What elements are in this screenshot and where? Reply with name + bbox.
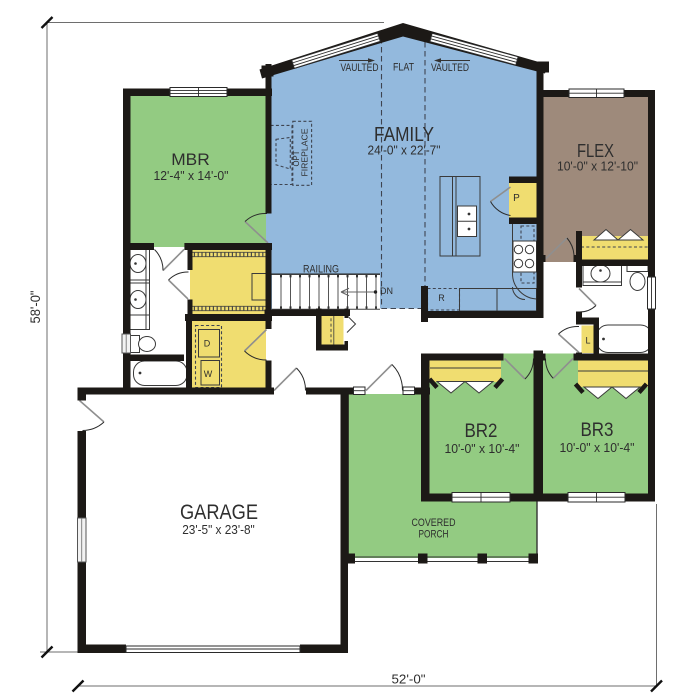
svg-text:58'-0": 58'-0" <box>28 290 43 323</box>
svg-text:FIREPLACE: FIREPLACE <box>300 128 310 176</box>
svg-text:BR3: BR3 <box>581 420 614 441</box>
svg-text:PORCH: PORCH <box>419 529 449 541</box>
svg-text:10'-0" x 12'-10": 10'-0" x 12'-10" <box>557 159 638 174</box>
svg-text:MBR: MBR <box>171 150 210 169</box>
svg-text:52'-0": 52'-0" <box>392 672 426 687</box>
svg-text:R: R <box>438 293 445 303</box>
svg-text:W: W <box>204 369 213 379</box>
svg-text:10'-0" x 10'-4": 10'-0" x 10'-4" <box>560 440 635 455</box>
svg-text:L: L <box>585 336 590 346</box>
svg-text:FLAT: FLAT <box>393 62 414 74</box>
svg-text:DN: DN <box>380 286 393 296</box>
svg-text:10'-0" x 10'-4": 10'-0" x 10'-4" <box>445 441 520 456</box>
svg-text:GARAGE: GARAGE <box>180 501 258 524</box>
svg-text:23'-5" x 23'-8": 23'-5" x 23'-8" <box>182 522 255 537</box>
svg-text:24'-0" x 22'-7": 24'-0" x 22'-7" <box>368 143 441 158</box>
svg-text:12'-4" x 14'-0": 12'-4" x 14'-0" <box>154 168 229 183</box>
svg-text:D: D <box>204 339 211 349</box>
svg-text:RAILING: RAILING <box>303 264 339 276</box>
svg-text:VAULTED: VAULTED <box>341 62 379 74</box>
svg-text:BR2: BR2 <box>465 421 498 442</box>
svg-text:COVERED: COVERED <box>412 517 456 529</box>
svg-text:P: P <box>513 193 520 204</box>
svg-text:VAULTED: VAULTED <box>431 62 469 74</box>
